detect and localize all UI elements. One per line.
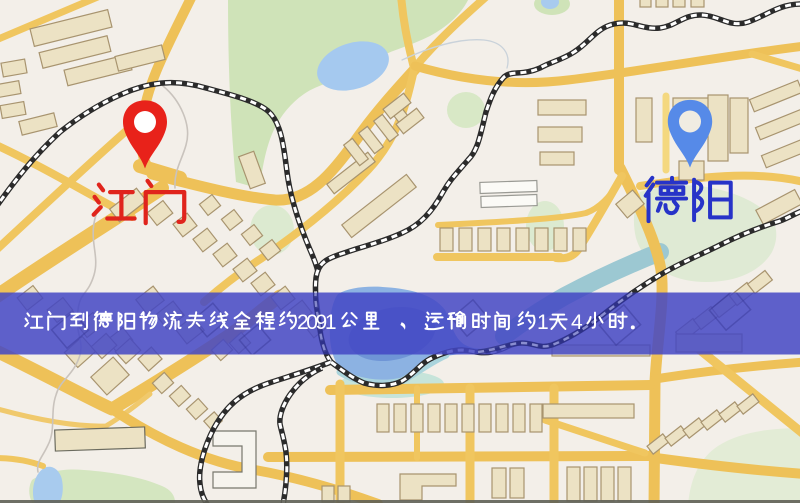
svg-text:4: 4	[571, 311, 583, 334]
svg-text:2091: 2091	[297, 311, 336, 334]
svg-text:1: 1	[537, 311, 549, 334]
